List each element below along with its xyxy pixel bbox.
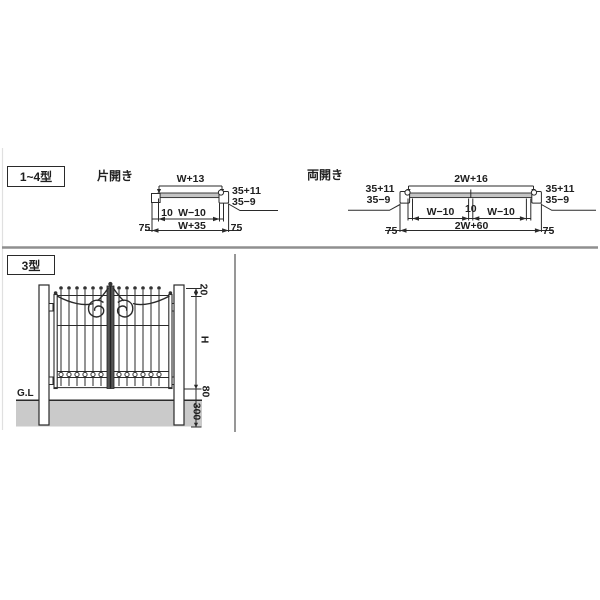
dim-single-post-right: 75 (231, 223, 243, 234)
dim-double-clear-right: W−10 (487, 207, 515, 218)
dim-single-post-left: 75 (139, 223, 151, 234)
dim-double-frame-b-left: 35−9 (367, 195, 391, 206)
dim-double-post-left: 75 (386, 226, 398, 237)
diagram-linework (0, 0, 600, 600)
dim-single-gap: 10 (161, 208, 173, 219)
dim-single-clear: W−10 (178, 208, 206, 219)
dim-single-frame-b: 35−9 (232, 197, 256, 208)
dim-double-frame-b-right: 35−9 (546, 195, 570, 206)
ground-level-label: G.L (17, 388, 34, 399)
dim-double-gap: 10 (465, 204, 477, 215)
double-swing-title: 両開き (307, 168, 343, 182)
dim-double-post-right: 75 (543, 226, 555, 237)
dim-gate-top-offset: 20 (198, 278, 209, 302)
catalog-spec-page: 1~4型 片開き 両開き W+13 35+11 35−9 10 W−10 W+3… (0, 0, 600, 600)
dim-gate-height: H (199, 328, 210, 352)
model-label: 3型 (22, 257, 41, 274)
dim-single-overall: W+35 (178, 221, 206, 232)
model-label-box: 3型 (7, 255, 55, 275)
series-label-box: 1~4型 (7, 166, 65, 187)
dim-double-overall: 2W+60 (455, 221, 489, 232)
dim-gate-embed-depth: 300 (191, 400, 202, 424)
dim-single-top-width: W+13 (177, 174, 205, 185)
dim-double-clear-left: W−10 (427, 207, 455, 218)
dim-double-top-width: 2W+16 (454, 174, 488, 185)
series-label: 1~4型 (20, 168, 52, 185)
single-swing-title: 片開き (97, 169, 133, 183)
